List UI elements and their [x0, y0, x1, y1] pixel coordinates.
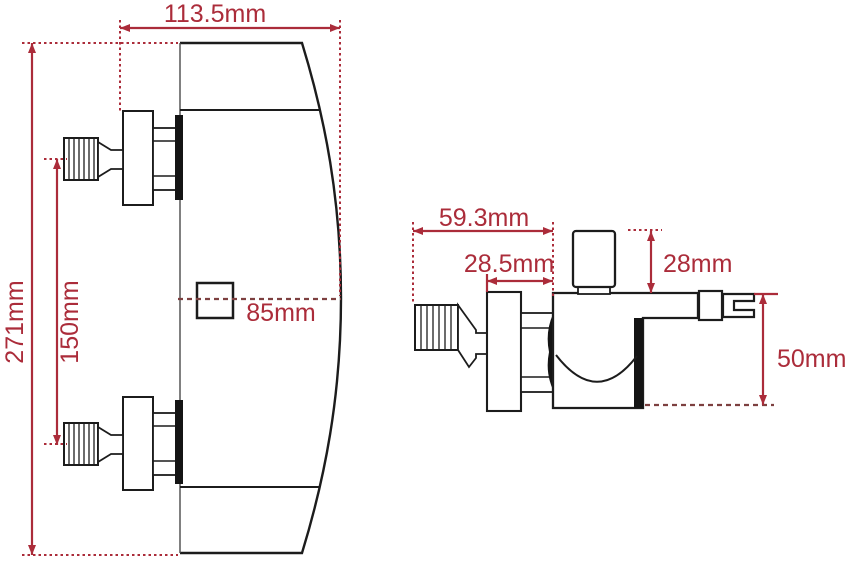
front-top-inlet-plate [123, 111, 153, 205]
front-bottom-inlet-nut [153, 413, 176, 475]
arrow-knob-top [647, 231, 655, 241]
front-bottom-inlet-shadow-bar [175, 400, 183, 484]
front-top-inlet-cone [98, 142, 123, 177]
front-bottom-inlet-cone [98, 427, 123, 462]
side-outlet-sleeve [699, 291, 722, 320]
side-body-shadow-bar [634, 318, 643, 408]
arrow-knob-bottom [647, 283, 655, 293]
dim-total-depth-label: 59.3mm [439, 204, 529, 232]
dimension-drawing: 113.5mm 271mm 150mm 85mm 59.3mm 28.5mm 2… [0, 0, 850, 566]
side-nut [521, 313, 553, 392]
dim-face-depth-label: 85mm [246, 299, 315, 327]
side-wall-plate [487, 292, 521, 411]
front-outlet-square [197, 283, 233, 318]
arrow-wallbody-left [487, 277, 497, 285]
arrow-depth-right [543, 227, 553, 235]
dim-wallbody-label: 28.5mm [464, 250, 554, 278]
dim-width-label: 113.5mm [164, 0, 266, 28]
side-knob [573, 231, 615, 287]
dim-spacing-label: 150mm [56, 280, 84, 363]
front-bottom-inlet [64, 397, 183, 490]
dim-knob-label: 28mm [663, 250, 732, 278]
arrow-height-top [28, 43, 36, 53]
arrow-bodyheight-top [759, 294, 767, 304]
front-bottom-inlet-plate [123, 397, 153, 490]
side-body-and-arm [553, 293, 698, 408]
dim-height-label: 271mm [1, 280, 29, 363]
arrow-bodyheight-bottom [759, 395, 767, 405]
front-top-inlet-nut [153, 128, 176, 190]
drawing-canvas: 113.5mm 271mm 150mm 85mm 59.3mm 28.5mm 2… [0, 0, 850, 566]
arrow-width-left [120, 24, 130, 32]
side-outlet-fork [723, 294, 754, 317]
side-inlet-cone [458, 305, 488, 367]
arrow-height-bottom [28, 545, 36, 555]
front-top-inlet-shadow-bar [175, 115, 183, 200]
arrow-depth-left [413, 227, 423, 235]
front-top-inlet [64, 111, 183, 205]
arrow-spacing-top [53, 159, 61, 169]
arrow-spacing-bottom [53, 435, 61, 445]
arrow-wallbody-right [543, 277, 553, 285]
dim-bodyheight-label: 50mm [777, 345, 846, 373]
arrow-width-right [330, 24, 340, 32]
